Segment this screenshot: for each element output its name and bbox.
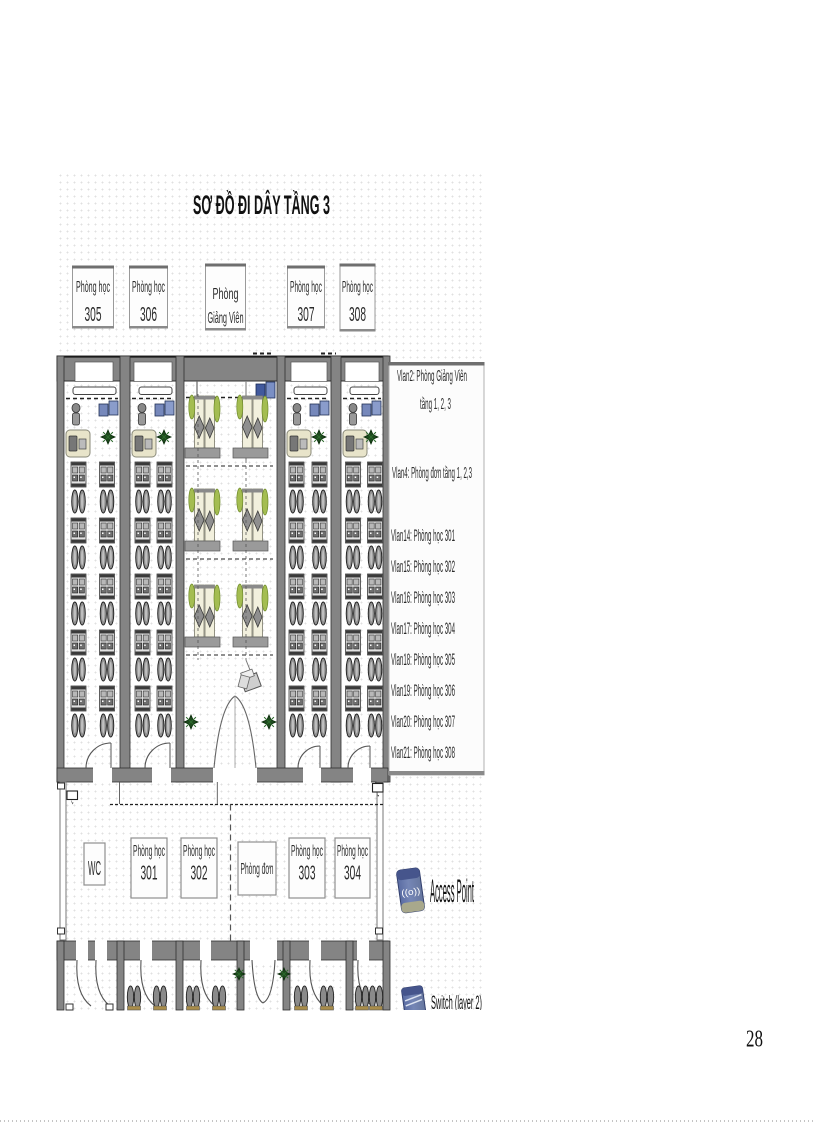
svg-text:307: 307 [298, 304, 315, 326]
svg-text:Vlan17: Phòng học 304: Vlan17: Phòng học 304 [391, 619, 455, 638]
svg-text:Phòng học: Phòng học [132, 279, 165, 296]
svg-text:Giảng Viên: Giảng Viên [208, 310, 244, 327]
svg-text:Switch (layer 2): Switch (layer 2) [431, 993, 482, 1014]
svg-text:Phòng học: Phòng học [342, 279, 373, 296]
svg-text:Vlan4: Phòng đơn tầng 1, 2,3: Vlan4: Phòng đơn tầng 1, 2,3 [392, 465, 472, 482]
svg-text:302: 302 [191, 863, 208, 885]
svg-text:SƠ ĐỒ ĐI DÂY TẦNG 3: SƠ ĐỒ ĐI DÂY TẦNG 3 [193, 189, 330, 220]
svg-text:Vlan20: Phòng học 307: Vlan20: Phòng học 307 [391, 712, 455, 731]
svg-text:306: 306 [140, 304, 157, 326]
svg-text:Vlan19: Phòng học 306: Vlan19: Phòng học 306 [391, 681, 455, 700]
svg-text:Phòng học: Phòng học [337, 843, 368, 860]
svg-text:303: 303 [299, 863, 316, 885]
svg-text:Phòng học: Phòng học [183, 843, 215, 860]
svg-text:Phòng học: Phòng học [76, 279, 110, 296]
svg-text:Vlan16: Phòng học 303: Vlan16: Phòng học 303 [391, 588, 455, 607]
svg-text:Phòng học: Phòng học [133, 843, 165, 860]
svg-text:Vlan15: Phòng học 302: Vlan15: Phòng học 302 [391, 557, 455, 576]
svg-text:305: 305 [85, 304, 102, 326]
svg-text:Vlan21: Phòng học 308: Vlan21: Phòng học 308 [391, 743, 455, 762]
svg-text:308: 308 [349, 304, 366, 326]
svg-text:Phòng học: Phòng học [290, 279, 322, 296]
svg-text:Vlan14: Phòng học 301: Vlan14: Phòng học 301 [391, 526, 455, 545]
svg-text:Vlan2: Phòng Giảng Viên: Vlan2: Phòng Giảng Viên [397, 368, 467, 385]
svg-text:Vlan18: Phòng học 305: Vlan18: Phòng học 305 [391, 650, 455, 669]
svg-text:Phòng: Phòng [213, 286, 239, 303]
svg-text:28: 28 [746, 1026, 763, 1053]
svg-text:Access Point: Access Point [430, 873, 474, 909]
svg-text:Phòng đơn: Phòng đơn [241, 861, 274, 878]
svg-text:tầng 1, 2, 3: tầng 1, 2, 3 [420, 396, 451, 413]
svg-text:Phòng học: Phòng học [291, 843, 323, 860]
svg-text:301: 301 [141, 863, 158, 885]
svg-text:WC: WC [88, 858, 101, 880]
svg-text:304: 304 [344, 863, 361, 885]
